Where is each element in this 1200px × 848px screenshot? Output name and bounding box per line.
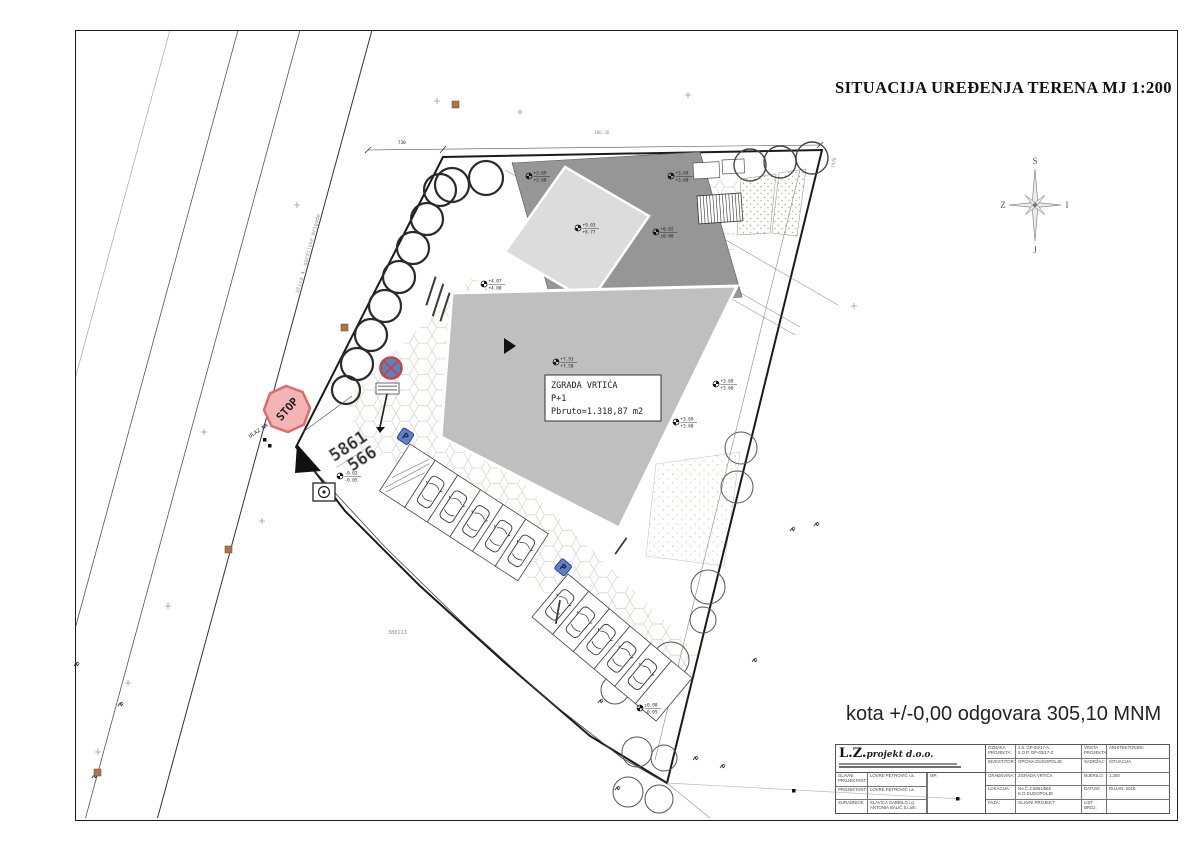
building-floors: P+1	[551, 394, 566, 404]
svg-text:-0.05: -0.05	[345, 478, 358, 484]
survey-point	[268, 444, 272, 448]
svg-text:-0.02: -0.02	[345, 471, 358, 477]
compass-rose: S J Z I	[1000, 156, 1068, 255]
svg-text:+4.07: +4.07	[489, 279, 502, 285]
entrance-arrow-icon	[295, 444, 321, 473]
tree	[796, 142, 828, 174]
svg-text:+3.60: +3.60	[681, 424, 694, 430]
drawing-title: SITUACIJA UREĐENJA TERENA MJ 1:200	[835, 78, 1180, 98]
title-block-right: OZNAKA PROJEKTA: 1.0. GP-03/17-A,2.O.P. …	[986, 745, 1170, 813]
tb-value: NA Č.Z.5861/566K.O.DUGOPOLJE	[1016, 786, 1082, 799]
exterior-stairs	[697, 193, 743, 224]
sand-play-area	[772, 169, 806, 236]
tb-value: 1.0. GP-03/17-A,2.O.P. GP-03/17-Z	[1016, 745, 1082, 758]
compass-north-label: S	[1032, 156, 1037, 166]
tb-label: GLAVNI PROJEKTANT:	[836, 773, 868, 786]
road: Ulica 4. gardijske brigade	[75, 30, 372, 820]
svg-text:+8.77: +8.77	[583, 230, 596, 236]
logo-fine-print	[839, 763, 957, 765]
title-block-left: L.Z.projekt d.o.o. GLAVNI PROJEKTANT: LO…	[836, 745, 986, 813]
svg-text:+9.03: +9.03	[583, 223, 596, 229]
tree	[622, 737, 652, 767]
svg-text:+3.60: +3.60	[676, 178, 689, 184]
stamp-area: MP.	[927, 773, 985, 813]
svg-text:+7.58: +7.58	[561, 364, 574, 370]
logo-fine-print	[839, 766, 961, 768]
tb-value: RUJAN, 2018.	[1107, 786, 1170, 799]
geodetic-point-label: 380113	[388, 630, 407, 636]
tree	[469, 161, 503, 195]
compass-west-label: Z	[1000, 200, 1006, 210]
tb-value: ZGRADA VRTIĆA	[1016, 773, 1082, 786]
tb-value: OPĆINA DUGOPOLJE	[1016, 759, 1082, 772]
tb-label: VRSTA PROJEKTA:	[1082, 745, 1107, 758]
svg-text:+4.00: +4.00	[489, 286, 502, 292]
svg-text:+0.02: +0.02	[661, 227, 674, 233]
svg-text:+3.69: +3.69	[721, 379, 734, 385]
building-area: Pbruto=1.318,87 m2	[551, 407, 643, 417]
tb-value: LOVRE PETROVIĆ i.a.	[868, 787, 927, 800]
tb-value: LOVRE PETROVIĆ i.a.	[868, 773, 927, 786]
svg-text:+7.93: +7.93	[561, 357, 574, 363]
svg-text:+3.69: +3.69	[681, 417, 694, 423]
spot-elevation-label: 306.36	[594, 130, 610, 136]
drawing-sheet: P Ulica 4. gardijske brigade	[0, 0, 1200, 848]
svg-text:±0.00: ±0.00	[645, 703, 658, 709]
survey-point	[792, 789, 796, 793]
dimension-label: 730	[398, 140, 406, 146]
tb-label: INVESTITOR:	[986, 759, 1016, 772]
garden-structure	[693, 162, 720, 179]
tree	[369, 290, 401, 322]
street-name-label: Ulica 4. gardijske brigade	[295, 214, 322, 294]
svg-text:+3.60: +3.60	[534, 178, 547, 184]
dimension-label: 1428	[830, 157, 838, 169]
tb-label: OZNAKA PROJEKTA:	[986, 745, 1016, 758]
logo-text: L.Z.	[839, 746, 866, 761]
tb-value: SITUACIJA	[1107, 759, 1170, 772]
entrance-edge-line	[303, 396, 352, 432]
tb-label: GRAĐEVINA:	[986, 773, 1016, 786]
tb-value: ARHITEKTONSKI	[1107, 745, 1170, 758]
tree	[424, 174, 456, 206]
sign-plate	[376, 383, 399, 394]
tb-label: FAZA:	[986, 800, 1016, 813]
building-label-box: ZGRADA VRTIĆA P+1 Pbruto=1.318,87 m2	[545, 375, 661, 421]
tb-value	[1107, 800, 1170, 813]
svg-text:+3.60: +3.60	[721, 386, 734, 392]
tb-label: DATUM:	[1082, 786, 1107, 799]
tree	[613, 777, 643, 807]
garden-structure	[722, 159, 745, 174]
svg-text:+3.69: +3.69	[676, 171, 689, 177]
tb-label: LOKACIJA:	[986, 786, 1016, 799]
compass-east-label: I	[1066, 200, 1069, 210]
tb-label: SADRŽAJ:	[1082, 759, 1107, 772]
title-block: L.Z.projekt d.o.o. GLAVNI PROJEKTANT: LO…	[835, 744, 1170, 814]
sand-play-area	[737, 174, 776, 235]
tree	[691, 570, 725, 604]
tb-value: 1:200	[1107, 773, 1170, 786]
survey-line	[667, 783, 710, 818]
elevation-marker: +3.69+3.60	[673, 417, 697, 430]
tree	[355, 319, 387, 351]
tb-label: PROJEKTANT:	[836, 787, 868, 800]
level-note: kota +/-0,00 odgovara 305,10 MNM	[846, 703, 1161, 726]
company-logo: L.Z.projekt d.o.o.	[836, 745, 985, 773]
elevation-marker: +3.69+3.60	[713, 379, 737, 392]
tree	[397, 232, 429, 264]
tree	[411, 203, 443, 235]
tree	[725, 432, 757, 464]
elevation-marker: -0.02-0.05	[337, 471, 361, 484]
tb-label: MJERILO:	[1082, 773, 1107, 786]
survey-point	[263, 438, 267, 442]
svg-text:±0.00: ±0.00	[661, 234, 674, 240]
playground-area	[646, 452, 740, 566]
tree	[690, 607, 716, 633]
tree	[645, 785, 673, 813]
utility-box-icon	[313, 483, 335, 501]
tb-label: SURADNICE:	[836, 800, 868, 813]
svg-text:+3.69: +3.69	[534, 171, 547, 177]
tb-value: GLAVNI PROJEKT	[1016, 800, 1082, 813]
tb-label: LIST BROJ:	[1082, 800, 1107, 813]
building-name: ZGRADA VRTIĆA	[551, 379, 618, 391]
tree	[383, 261, 415, 293]
compass-south-label: J	[1033, 245, 1037, 255]
tb-value: SLAVICA GABRILO i.g. ANTONIA BALIĆ b.i.a…	[868, 800, 927, 813]
svg-text:-0.05: -0.05	[645, 710, 658, 716]
